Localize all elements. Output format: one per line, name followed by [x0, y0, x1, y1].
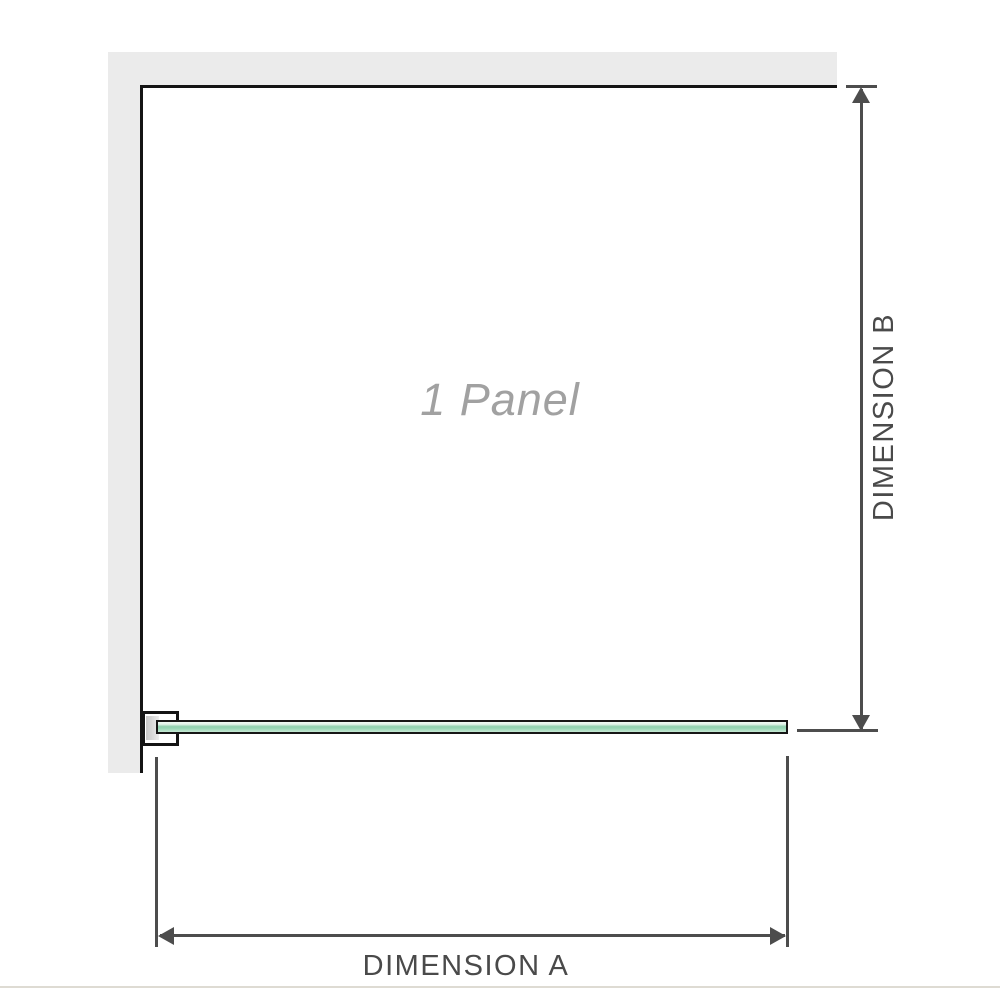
dimension-b-arrow-up-icon	[852, 87, 870, 103]
dimension-a-arrow-right-icon	[770, 927, 786, 945]
wall-top-strip	[108, 52, 837, 85]
dimension-a-line	[160, 934, 785, 937]
dimension-a-extension-line-right	[786, 756, 789, 947]
shower-panel-diagram: 1 Panel DIMENSION B DIMENSION A	[0, 0, 1000, 1000]
dimension-a-arrow-left-icon	[158, 927, 174, 945]
panel-count-label: 1 Panel	[300, 372, 700, 428]
page-bottom-rule	[0, 986, 1000, 988]
dimension-b-label: DIMENSION B	[868, 217, 900, 617]
dimension-b-arrow-down-icon	[852, 715, 870, 731]
wall-inner-edge-left-line	[140, 85, 143, 773]
wall-inner-edge-top-line	[140, 85, 837, 88]
dimension-b-line	[860, 89, 863, 731]
dimension-a-extension-line-left	[155, 757, 158, 947]
wall-left-strip	[108, 52, 141, 773]
glass-panel-bar	[156, 720, 788, 734]
dimension-a-label: DIMENSION A	[296, 950, 636, 982]
